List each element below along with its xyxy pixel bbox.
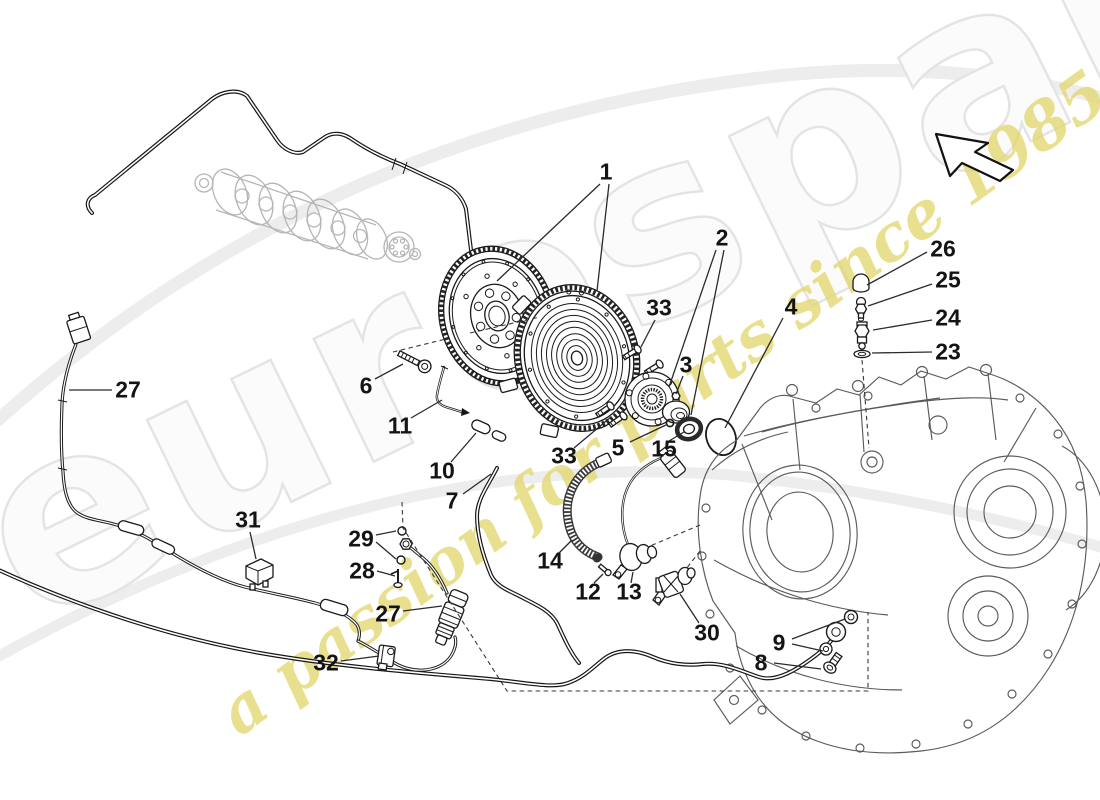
part-label-23: 23 <box>935 341 961 364</box>
part-label-30: 30 <box>694 622 720 645</box>
part-label-29: 29 <box>348 528 374 551</box>
callout-labels-layer: 1234567891011121314152324252627272829303… <box>0 0 1100 800</box>
part-label-33: 33 <box>551 445 577 468</box>
part-label-27: 27 <box>115 379 141 402</box>
part-label-26: 26 <box>930 238 956 261</box>
part-label-9: 9 <box>773 632 786 655</box>
part-label-28: 28 <box>349 560 375 583</box>
part-label-7: 7 <box>446 490 459 513</box>
part-label-15: 15 <box>651 438 677 461</box>
parts-diagram-canvas: eurospares a passion for parts since 198… <box>0 0 1100 800</box>
part-label-2: 2 <box>716 227 729 250</box>
part-label-8: 8 <box>755 652 768 675</box>
part-label-24: 24 <box>935 307 961 330</box>
part-label-1: 1 <box>600 161 613 184</box>
part-label-25: 25 <box>935 269 961 292</box>
part-label-5: 5 <box>612 437 625 460</box>
part-label-4: 4 <box>785 296 798 319</box>
part-label-11: 11 <box>388 415 412 438</box>
part-label-33: 33 <box>646 297 672 320</box>
part-label-13: 13 <box>616 581 642 604</box>
part-label-10: 10 <box>429 460 455 483</box>
part-label-6: 6 <box>360 375 373 398</box>
part-label-27: 27 <box>375 603 401 626</box>
part-label-12: 12 <box>575 581 601 604</box>
part-label-32: 32 <box>313 652 339 675</box>
part-label-3: 3 <box>680 354 693 377</box>
part-label-14: 14 <box>537 550 563 573</box>
part-label-31: 31 <box>235 509 261 532</box>
